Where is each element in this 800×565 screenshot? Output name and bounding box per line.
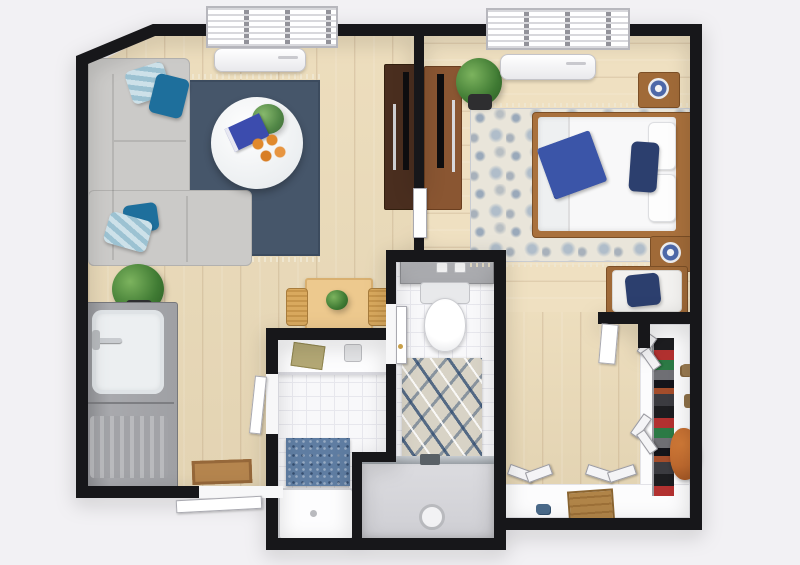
bathroom-door-leaf — [396, 306, 407, 364]
bedroom-window-blinds — [486, 8, 630, 50]
utility-door-opening — [266, 374, 278, 434]
floor-plan-canvas — [0, 0, 800, 565]
bathroom-door-opening — [386, 304, 396, 364]
closet-door-leaf — [598, 323, 618, 364]
walls-layer — [0, 0, 800, 565]
ac-vent-line — [566, 62, 586, 65]
bathroom-top-wall — [386, 250, 504, 262]
bathroom-right-wall — [494, 250, 506, 524]
utility-top-wall — [266, 328, 396, 340]
living-bedroom-door — [413, 188, 427, 238]
wall-jog — [352, 452, 396, 462]
shower-left-wall — [352, 452, 362, 544]
utility-left-wall — [266, 340, 278, 550]
bedroom-ac-unit — [500, 54, 596, 80]
ac-vent-line — [278, 56, 298, 59]
living-window-blinds — [206, 6, 338, 48]
brass-door-handle — [398, 344, 403, 349]
divider-wall — [414, 36, 424, 188]
living-ac-unit — [214, 48, 306, 72]
closet-wall-stub — [638, 312, 650, 348]
